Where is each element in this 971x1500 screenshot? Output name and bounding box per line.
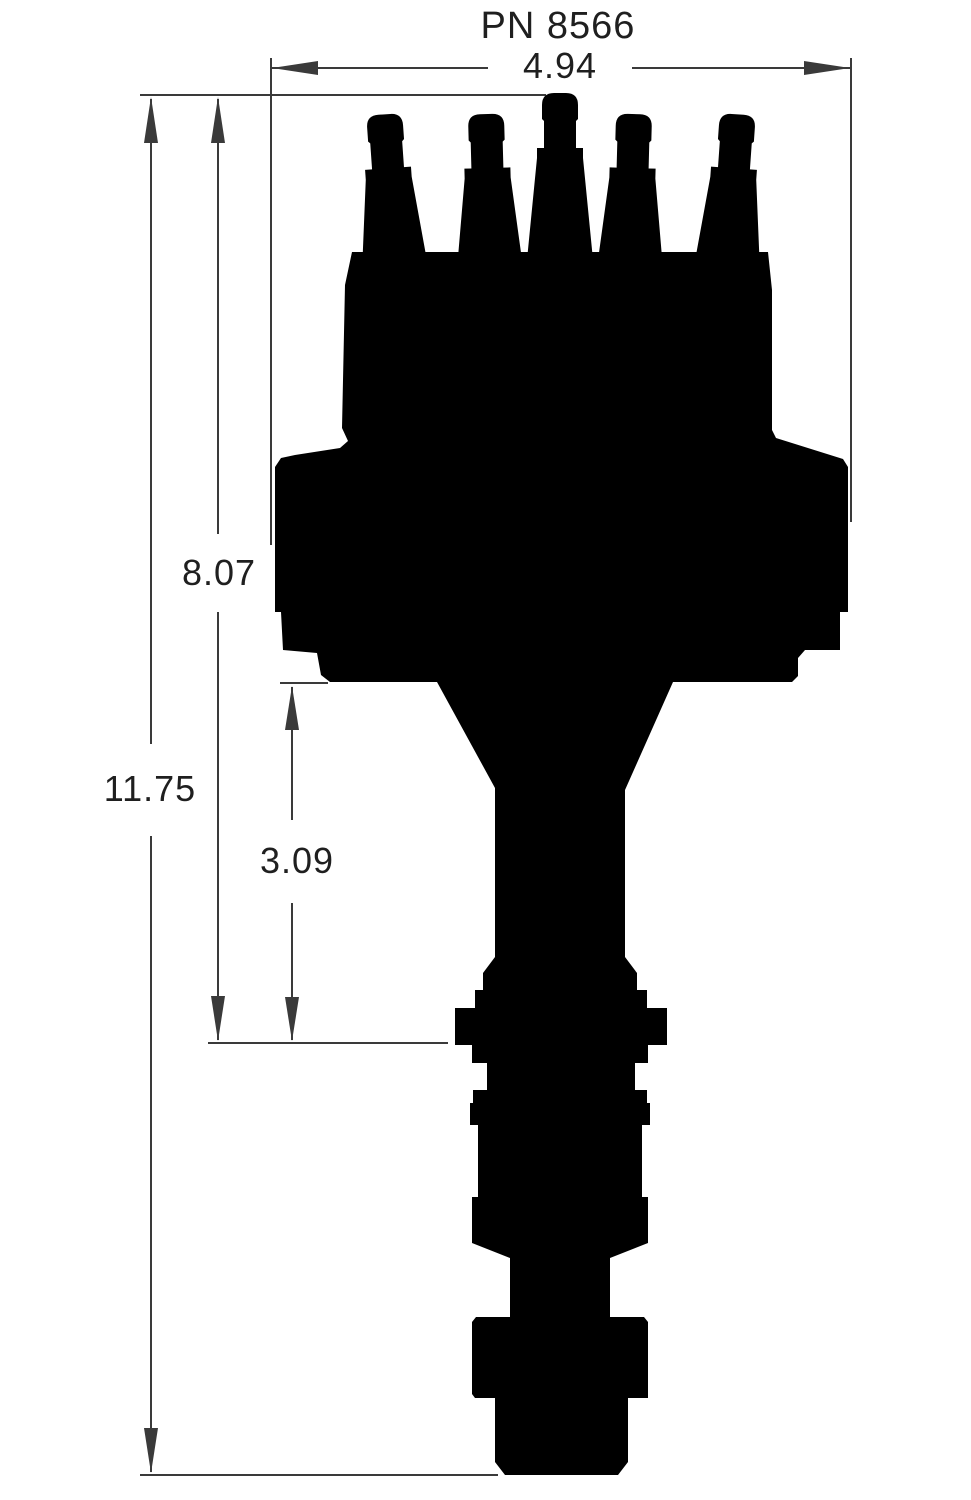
arrow-left-icon xyxy=(272,61,318,75)
cap-tower-2 xyxy=(453,113,523,269)
part-number-label: PN 8566 xyxy=(481,7,636,45)
dim-overall-width-value: 4.94 xyxy=(523,48,597,84)
distributor-body xyxy=(275,252,848,1475)
arrow-right-icon xyxy=(804,61,850,75)
arrow-down-icon xyxy=(211,996,225,1041)
cap-tower-center-coil xyxy=(526,93,594,270)
arrow-down-icon xyxy=(285,997,299,1041)
technical-drawing: PN 8566 4.94 8.07 11.75 3.09 xyxy=(0,0,971,1500)
cap-tower-4 xyxy=(597,113,667,269)
arrow-up-icon xyxy=(144,97,158,143)
dim-flange-collar-value: 3.09 xyxy=(260,843,334,879)
distributor-silhouette xyxy=(275,93,848,1475)
dim-overall-height-value: 11.75 xyxy=(104,771,196,807)
arrow-down-icon xyxy=(144,1428,158,1473)
cap-tower-5 xyxy=(694,112,771,270)
cap-tower-1 xyxy=(351,112,428,270)
arrow-up-icon xyxy=(211,97,225,143)
dim-cap-height-value: 8.07 xyxy=(182,555,256,591)
drawing-graphics xyxy=(0,0,971,1500)
arrow-up-icon xyxy=(285,686,299,730)
